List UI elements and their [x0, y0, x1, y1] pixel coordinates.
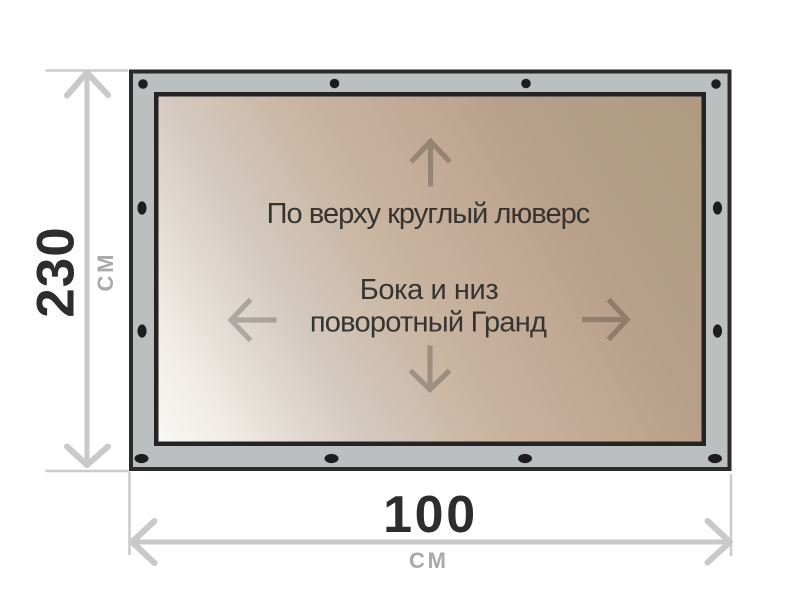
svg-text:поворотный Гранд: поворотный Гранд [310, 307, 547, 339]
svg-text:СМ: СМ [409, 548, 449, 573]
svg-text:По верху круглый люверс: По верху круглый люверс [267, 198, 590, 230]
svg-text:230: 230 [27, 226, 86, 317]
svg-text:Бока и низ: Бока и низ [360, 274, 499, 306]
svg-text:СМ: СМ [93, 252, 118, 292]
svg-text:100: 100 [383, 486, 478, 544]
